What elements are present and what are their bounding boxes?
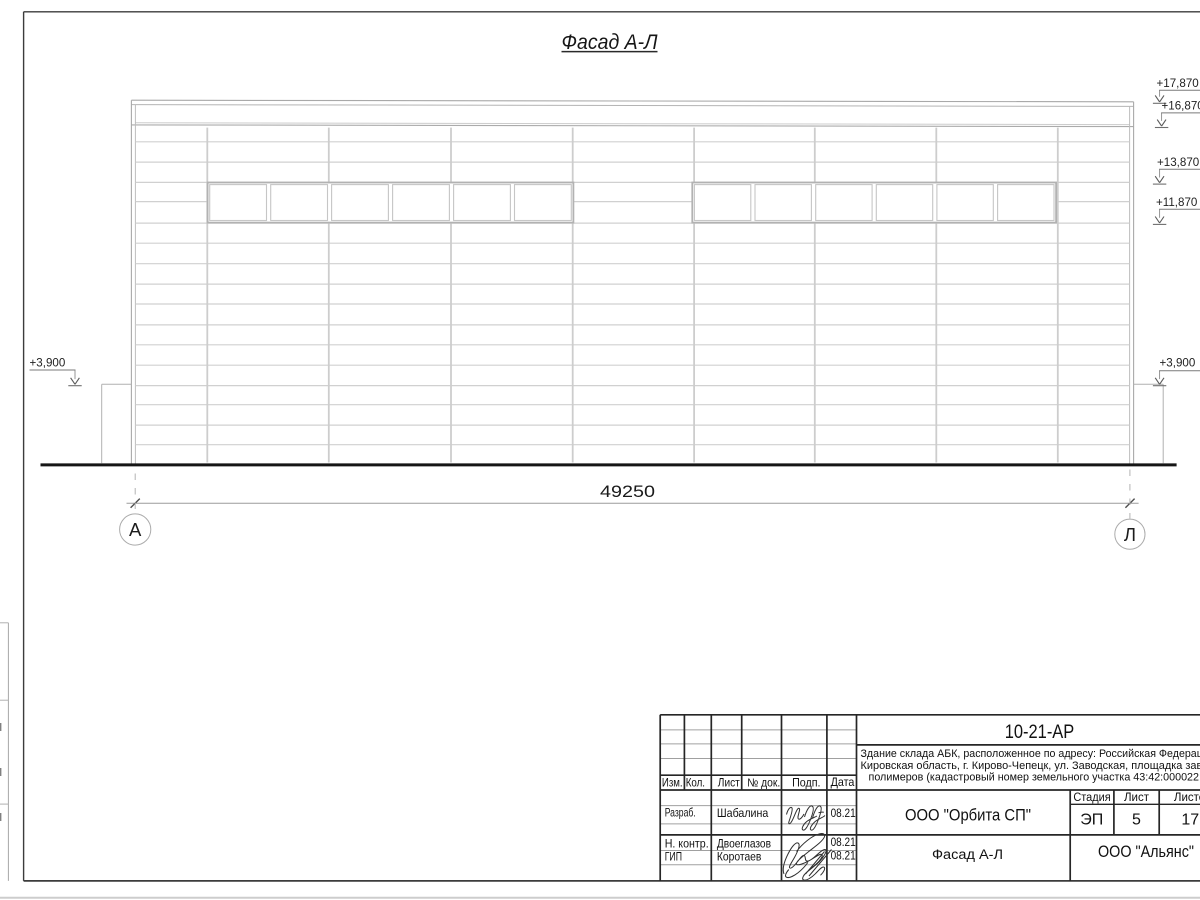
svg-text:Кировская область, г. Кирово-Ч: Кировская область, г. Кирово-Чепецк, ул.… <box>861 760 1200 772</box>
svg-text:Коротаев: Коротаев <box>717 849 762 863</box>
svg-text:Фасад А-Л: Фасад А-Л <box>562 31 659 54</box>
svg-text:Дата: Дата <box>831 776 855 789</box>
svg-text:№ док.: № док. <box>747 777 780 790</box>
svg-text:5: 5 <box>1132 811 1141 828</box>
svg-text:ООО "Орбита СП": ООО "Орбита СП" <box>905 807 1031 825</box>
svg-text:полимеров (кадастровый номер з: полимеров (кадастровый номер земельного … <box>869 772 1200 784</box>
svg-text:Л: Л <box>1124 524 1136 545</box>
svg-text:Двоеглазов: Двоеглазов <box>717 836 771 850</box>
svg-text:+3,900: +3,900 <box>30 357 66 370</box>
svg-text:ЭП: ЭП <box>1080 811 1103 828</box>
svg-text:+3,900: +3,900 <box>1160 356 1196 369</box>
svg-text:+13,870: +13,870 <box>1157 156 1199 169</box>
svg-text:Разраб.: Разраб. <box>665 806 696 820</box>
svg-text:Здание склада АБК, расположенн: Здание склада АБК, расположенное по адре… <box>861 748 1200 760</box>
svg-text:Подп.: Подп. <box>792 777 820 790</box>
svg-text:ООО "Альянс": ООО "Альянс" <box>1098 843 1194 861</box>
svg-text:ГИП: ГИП <box>665 849 682 863</box>
svg-text:Н. контр.: Н. контр. <box>665 836 709 850</box>
svg-text:Шабалина: Шабалина <box>717 806 769 820</box>
svg-text:Стадия: Стадия <box>1073 792 1110 804</box>
svg-text:Изм.: Изм. <box>662 777 683 790</box>
svg-text:Лист: Лист <box>1124 792 1150 804</box>
svg-text:А: А <box>129 519 142 540</box>
svg-text:Листов: Листов <box>1174 792 1200 804</box>
svg-text:+17,870: +17,870 <box>1157 77 1199 90</box>
svg-text:Фасад А-Л: Фасад А-Л <box>932 847 1003 863</box>
svg-text:+16,870: +16,870 <box>1162 100 1200 113</box>
svg-text:08.21: 08.21 <box>831 849 856 863</box>
svg-text:08.21: 08.21 <box>831 835 856 849</box>
svg-text:49250: 49250 <box>600 482 655 501</box>
svg-text:Лист: Лист <box>718 777 741 790</box>
svg-text:17: 17 <box>1181 811 1199 828</box>
svg-text:10-21-АР: 10-21-АР <box>1005 721 1075 743</box>
svg-text:Кол.: Кол. <box>686 777 705 790</box>
svg-text:08.21: 08.21 <box>831 806 856 820</box>
svg-text:+11,870: +11,870 <box>1156 196 1197 209</box>
